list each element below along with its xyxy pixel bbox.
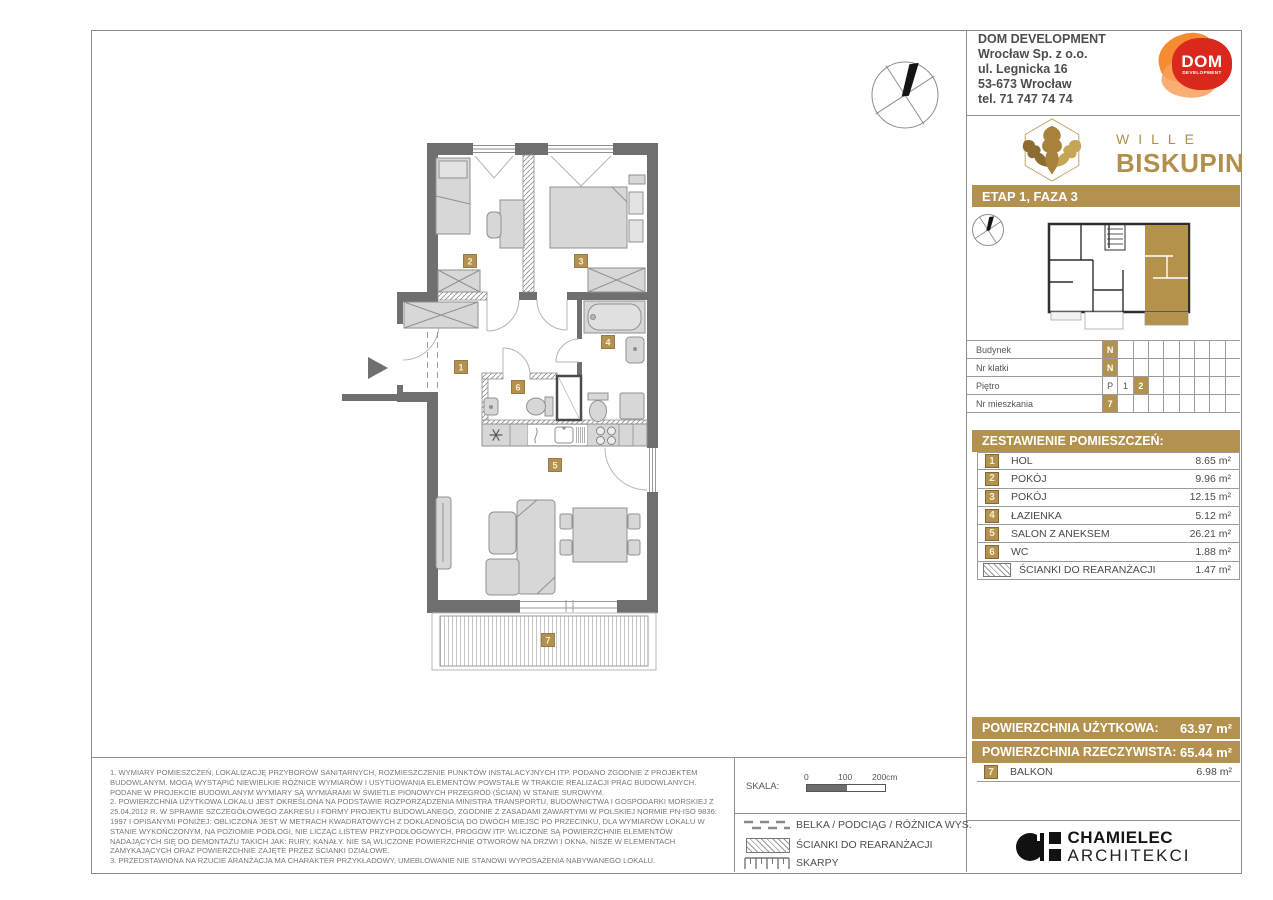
usable-area-value: 63.97 m² — [1180, 721, 1232, 736]
scale-bar — [806, 784, 886, 792]
floor-plan: 1 2 3 4 5 6 7 — [330, 50, 960, 700]
brand-wordmark: WILLE BISKUPIN — [1116, 131, 1244, 179]
slope-comb-icon — [744, 856, 792, 870]
table-row: Nr mieszkania 7 — [966, 395, 1240, 413]
hatch-swatch-icon — [983, 563, 1011, 577]
room-row: 2 POKÓJ 9.96 m² — [977, 470, 1240, 488]
compass-icon — [857, 50, 954, 143]
actual-area-value: 65.44 m² — [1180, 745, 1232, 760]
footnote-1: 1. WYMIARY POMIESZCZEŃ, LOKALIZACJĘ PRZY… — [110, 768, 722, 797]
room-row: 1 HOL 8.65 m² — [977, 452, 1240, 470]
cell-building: N — [1102, 341, 1117, 358]
table-row: Nr klatki N — [966, 359, 1240, 377]
company-line: tel. 71 747 74 74 — [978, 92, 1148, 107]
kitchen-counter — [482, 424, 647, 446]
company-line: 53-673 Wrocław — [978, 77, 1148, 92]
wille-biskupin-leaf-logo — [1000, 116, 1110, 182]
table-row: Piętro P 1 2 — [966, 377, 1240, 395]
architect-name: CHAMIELEC — [1068, 829, 1191, 847]
brand-line-wille: WILLE — [1116, 131, 1244, 147]
svg-text:2: 2 — [467, 257, 472, 267]
scale-legend-divider — [734, 813, 966, 814]
table-row: Budynek N — [966, 341, 1240, 359]
company-line: Wrocław Sp. z o.o. — [978, 47, 1148, 62]
room-number-badge: 6 — [985, 545, 999, 559]
mini-compass-icon — [970, 212, 1006, 248]
architect-logo: CHAMIELEC ARCHITEKCI — [966, 820, 1240, 873]
brand-line-biskupin: BISKUPIN — [1116, 148, 1244, 179]
cell-staircase: N — [1102, 359, 1117, 376]
badge-lazienka: 4 — [602, 336, 615, 349]
rooms-table: 1 HOL 8.65 m² 2 POKÓJ 9.96 m² 3 POKÓJ 12… — [977, 452, 1240, 580]
svg-text:6: 6 — [515, 383, 520, 393]
legend-item-slopes: SKARPY — [744, 854, 960, 872]
room-row: 6 WC 1.88 m² — [977, 543, 1240, 561]
dom-development-logo: DOM DEVELOPMENT — [1156, 34, 1236, 100]
entrance-arrow-icon — [368, 357, 388, 379]
right-column-divider — [966, 30, 967, 872]
badge-pokoj-3: 3 — [575, 255, 588, 268]
scale-bar-filled — [807, 785, 847, 791]
company-info: DOM DEVELOPMENT Wrocław Sp. z o.o. ul. L… — [978, 32, 1148, 107]
company-name: DOM DEVELOPMENT — [978, 32, 1148, 47]
scale-label: SKALA: — [746, 781, 779, 792]
logo-red-blob: DOM DEVELOPMENT — [1172, 38, 1232, 90]
footnote-scale-divider — [734, 757, 735, 872]
svg-text:4: 4 — [605, 338, 610, 348]
room-number-badge: 4 — [985, 509, 999, 523]
rooms-title-banner: ZESTAWIENIE POMIESZCZEŃ: — [972, 430, 1240, 452]
footnote-2: 2. POWIERZCHNIA UŻYTKOWA LOKALU JEST OKR… — [110, 797, 722, 856]
room-row: 5 SALON Z ANEKSEM 26.21 m² — [977, 525, 1240, 543]
footnote-3: 3. PRZEDSTAWIONA NA RZUCIE ARANŻACJA MA … — [110, 856, 722, 866]
svg-text:5: 5 — [552, 461, 557, 471]
floorplan-sheet: 1 2 3 4 5 6 7 DOM DEVELOPMENT Wrocław Sp… — [0, 0, 1273, 900]
badge-balkon: 7 — [542, 634, 555, 647]
rearrangement-row: ŚCIANKI DO REARANŻACJI 1.47 m² — [977, 562, 1240, 580]
scale-tick-100: 100 — [838, 772, 852, 782]
room-row: 4 ŁAZIENKA 5.12 m² — [977, 507, 1240, 525]
architect-logo-mark — [1016, 829, 1062, 865]
bottom-strip-divider — [91, 757, 966, 758]
architect-subtitle: ARCHITEKCI — [1068, 847, 1191, 865]
footnotes: 1. WYMIARY POMIESZCZEŃ, LOKALIZACJĘ PRZY… — [110, 768, 722, 866]
unit-info-table: Budynek N Nr klatki N Piętro P 1 2 Nr mi… — [966, 340, 1240, 413]
badge-hol: 1 — [455, 361, 468, 374]
svg-text:3: 3 — [578, 257, 583, 267]
svg-text:1: 1 — [458, 363, 463, 373]
company-line: ul. Legnicka 16 — [978, 62, 1148, 77]
cell-floor: 2 — [1133, 377, 1148, 394]
beam-dash-icon — [744, 819, 792, 831]
balcony-number-badge: 7 — [984, 765, 998, 779]
stage-banner: ETAP 1, FAZA 3 — [972, 185, 1240, 207]
usable-area-banner: POWIERZCHNIA UŻYTKOWA: 63.97 m² — [972, 717, 1240, 739]
scale-tick-0: 0 — [804, 772, 809, 782]
room-row: 3 POKÓJ 12.15 m² — [977, 489, 1240, 507]
room-number-badge: 3 — [985, 490, 999, 504]
key-plan — [1043, 220, 1195, 332]
room-number-badge: 2 — [985, 472, 999, 486]
scale-tick-200: 200cm — [872, 772, 898, 782]
actual-area-banner: POWIERZCHNIA RZECZYWISTA: 65.44 m² — [972, 741, 1240, 763]
balcony-row: 7 BALKON 6.98 m² — [977, 763, 1240, 782]
badge-salon: 5 — [549, 459, 562, 472]
room-number-badge: 5 — [985, 527, 999, 541]
svg-text:7: 7 — [545, 636, 550, 646]
badge-pokoj-2: 2 — [464, 255, 477, 268]
legend-item-rearrangement: ŚCIANKI DO REARANŻACJI — [744, 836, 960, 854]
cell-apartment-number: 7 — [1102, 395, 1117, 412]
legend-item-beam: BELKA / PODCIĄG / RÓŻNICA WYS. — [744, 816, 960, 834]
badge-wc: 6 — [512, 381, 525, 394]
room-number-badge: 1 — [985, 454, 999, 468]
furniture — [404, 158, 645, 595]
rearrangement-hatch-icon — [746, 838, 790, 853]
